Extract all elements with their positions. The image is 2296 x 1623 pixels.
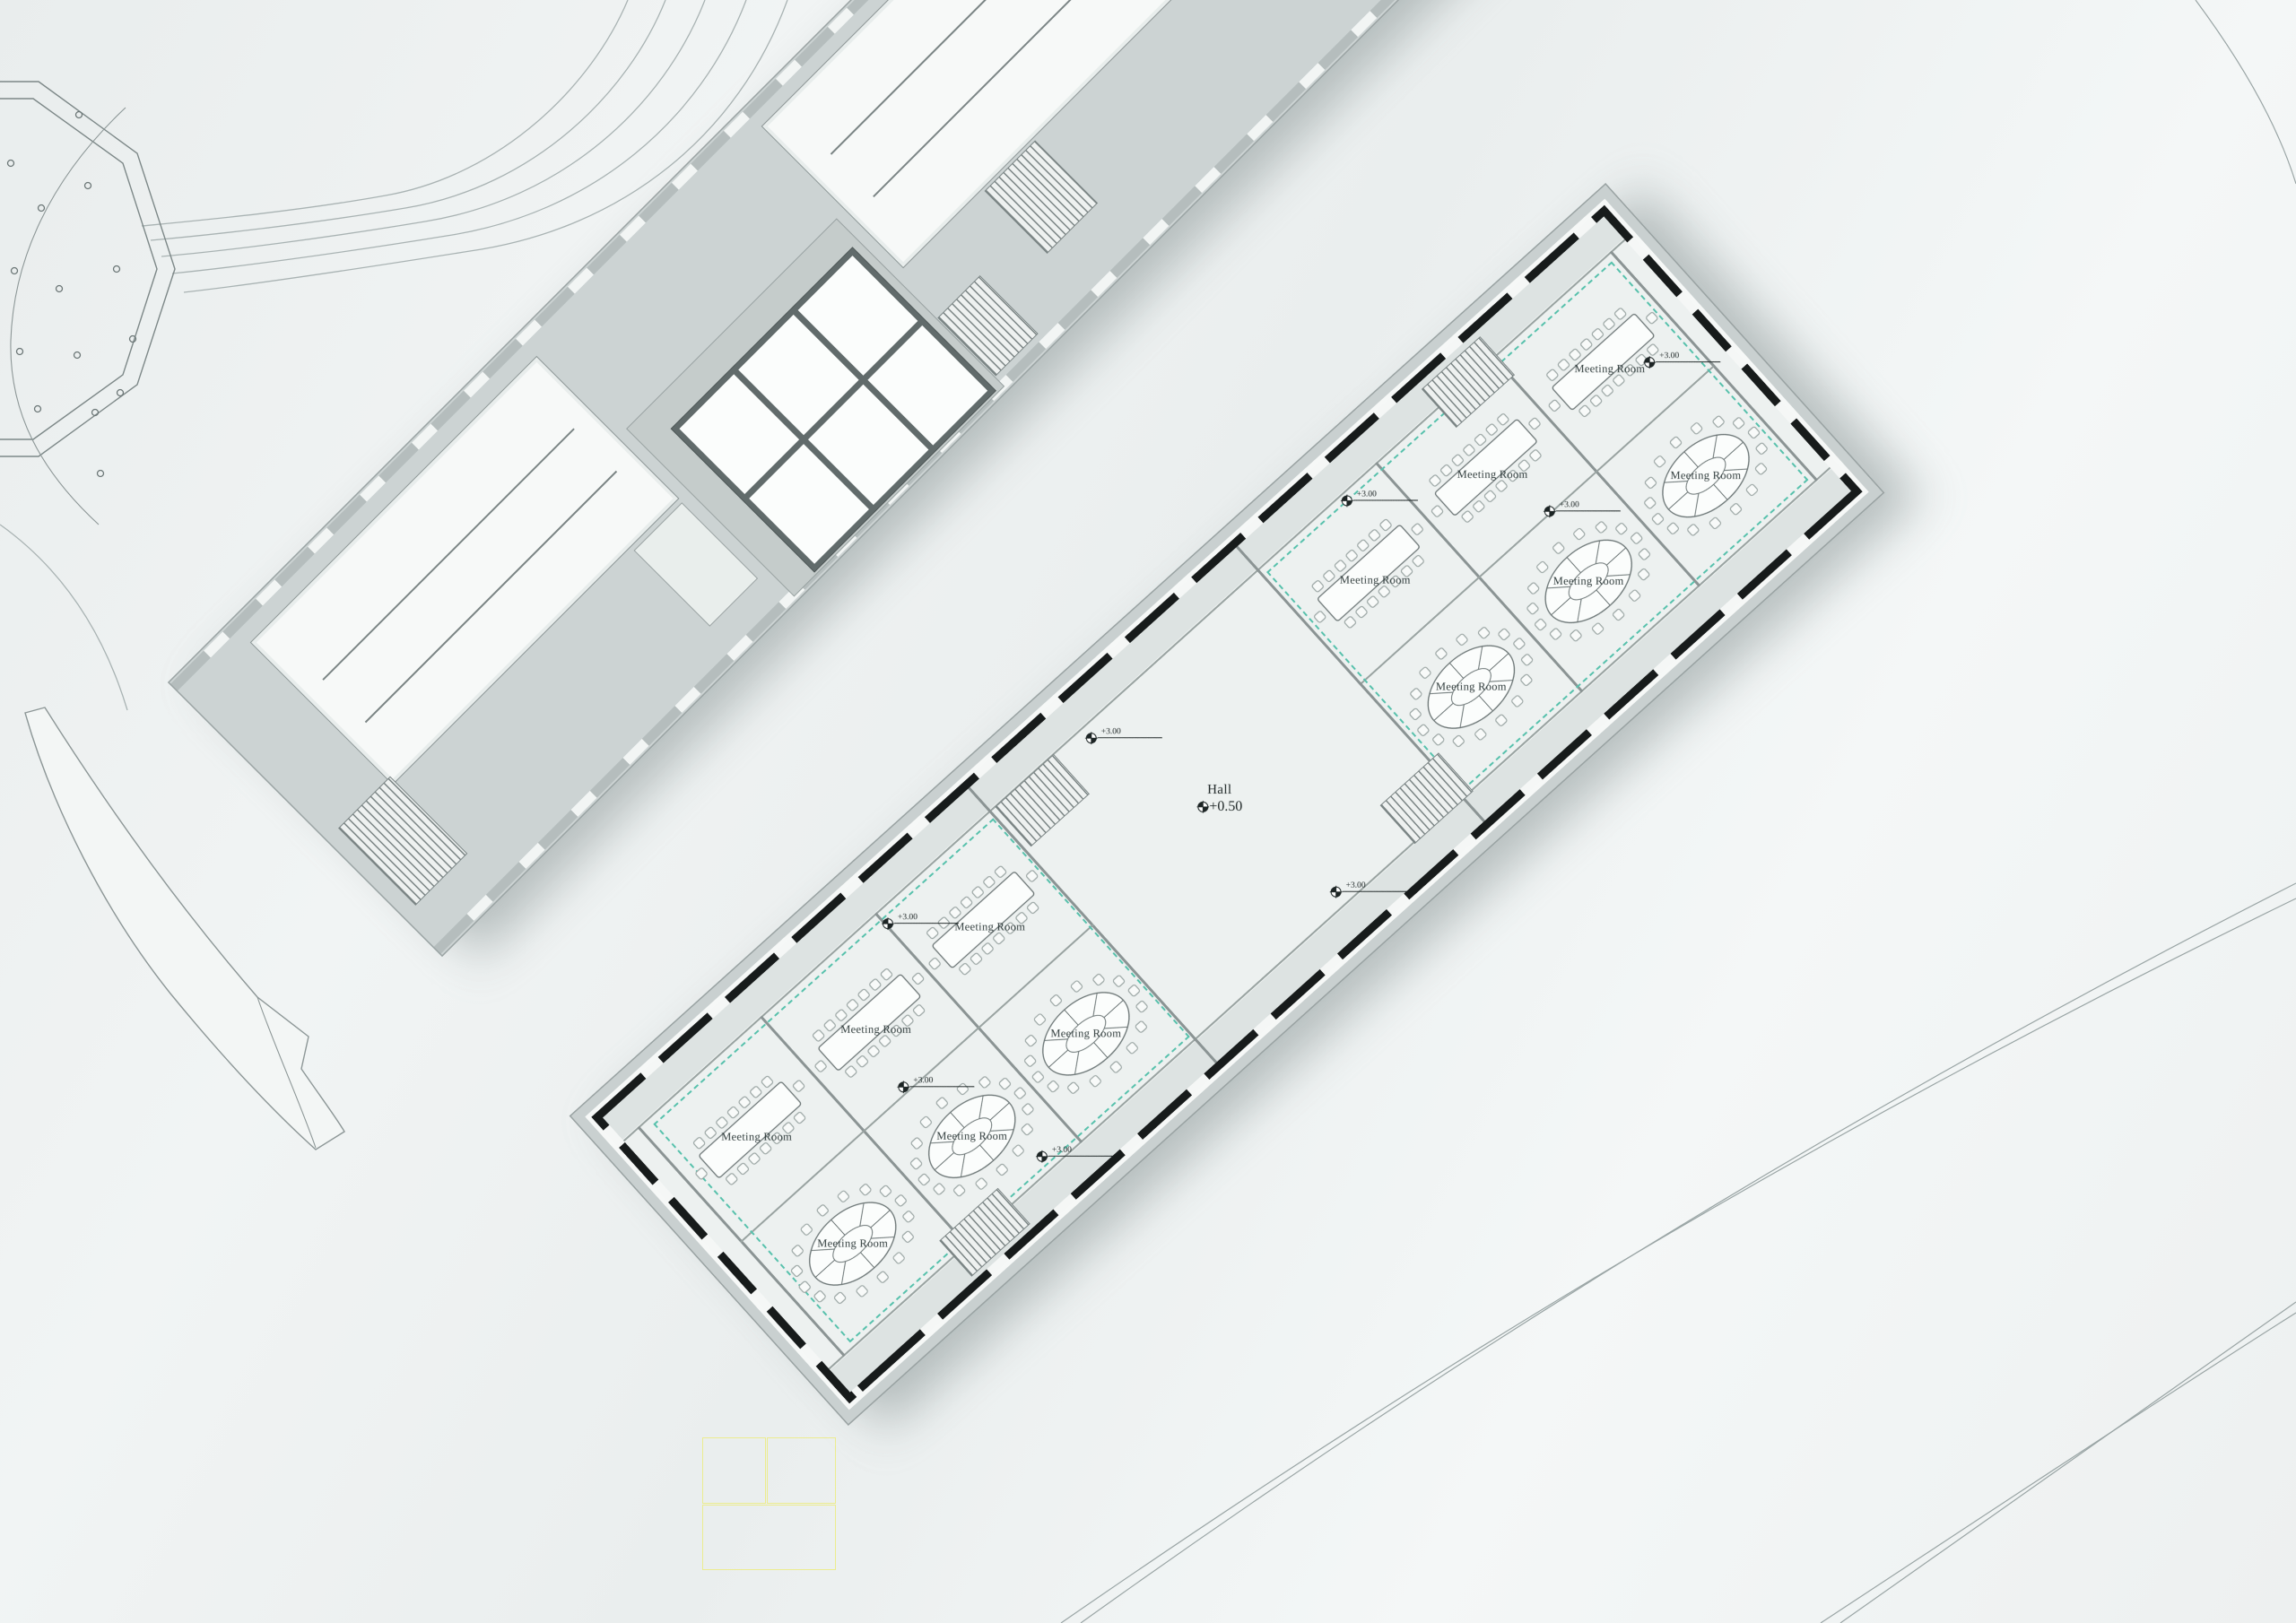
elevation-marker: +3.00 <box>1330 886 1407 898</box>
roof-ridge-line <box>364 471 616 723</box>
benchmark-icon <box>1085 732 1098 744</box>
elevation-marker: +3.00 <box>1341 494 1418 507</box>
elevation-marker: +3.00 <box>1544 505 1621 517</box>
room-label: Meeting Room <box>954 920 1025 933</box>
hall-label-block: Hall +0.50 <box>1196 783 1242 815</box>
survey-grid <box>702 1437 837 1571</box>
benchmark-icon <box>1341 494 1353 507</box>
room-label: Meeting Room <box>1436 681 1507 694</box>
benchmark-icon <box>882 917 894 930</box>
room-label: Meeting Room <box>817 1237 888 1251</box>
site-plan-page: { "page": { "background": "#eef1f1" }, "… <box>0 0 2296 1623</box>
roof-ridge-line <box>831 0 1296 155</box>
plaza-trees <box>8 112 136 477</box>
room-label: Meeting Room <box>936 1130 1007 1143</box>
elevation-marker: +3.00 <box>882 917 959 930</box>
benchmark-icon <box>1544 505 1556 517</box>
room-label: Meeting Room <box>840 1023 911 1037</box>
elevation-marker: +3.00 <box>1085 732 1162 744</box>
left-contour-arc <box>0 525 127 710</box>
elevation-marker: +3.00 <box>897 1081 974 1093</box>
plaza-decagon <box>0 82 175 525</box>
survey-grid-cell <box>767 1437 836 1504</box>
room-label: Meeting Room <box>721 1131 792 1144</box>
survey-grid-cell <box>702 1437 766 1504</box>
benchmark-icon <box>1036 1150 1048 1163</box>
benchmark-icon <box>1643 356 1656 369</box>
benchmark-icon <box>1196 801 1209 813</box>
room-label: Meeting Room <box>1574 362 1645 376</box>
benchmark-icon <box>1330 886 1343 898</box>
hall-label: Hall <box>1207 783 1231 798</box>
room-label: Meeting Room <box>1457 468 1528 482</box>
survey-grid-cell <box>702 1505 836 1570</box>
elevation-marker: +3.00 <box>1643 356 1720 369</box>
room-label: Meeting Room <box>1050 1027 1121 1040</box>
elevation-marker: +3.00 <box>1036 1150 1113 1163</box>
hall-elevation: +0.50 <box>1209 799 1242 815</box>
room-label: Meeting Room <box>1340 574 1411 587</box>
room-label: Meeting Room <box>1553 575 1624 588</box>
room-label: Meeting Room <box>1670 469 1741 482</box>
benchmark-icon <box>897 1081 909 1093</box>
